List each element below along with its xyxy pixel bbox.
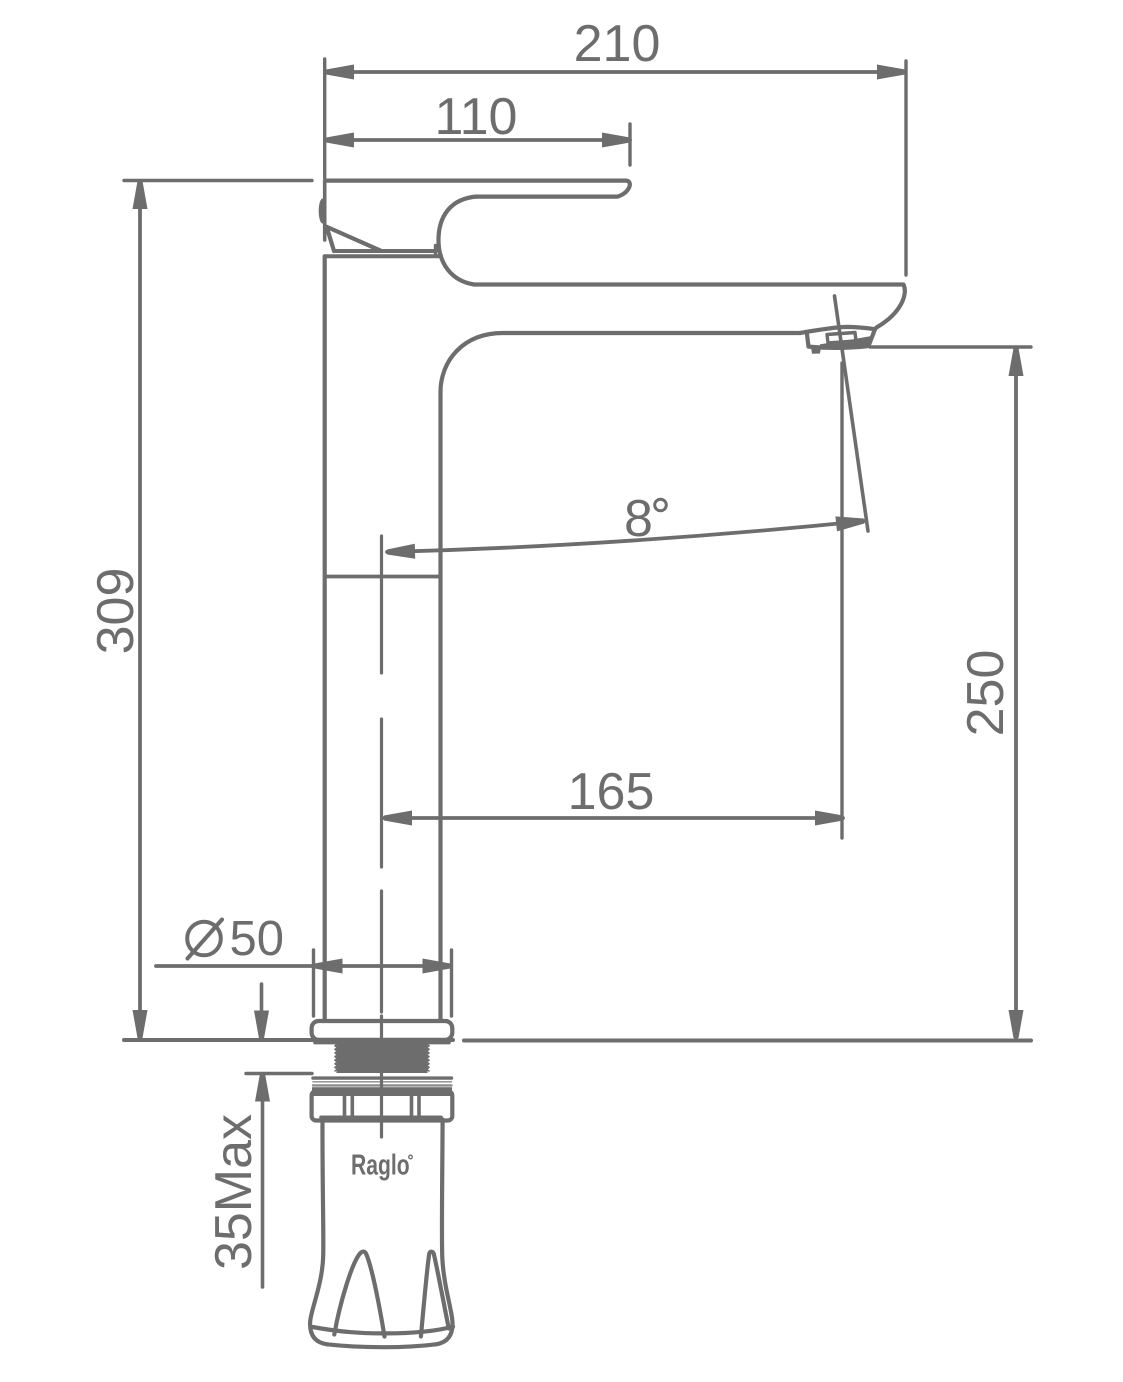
svg-text:210: 210 bbox=[574, 15, 661, 73]
svg-text:309: 309 bbox=[87, 568, 145, 655]
svg-text:8: 8 bbox=[624, 490, 653, 548]
svg-text:Raglo: Raglo bbox=[351, 1149, 410, 1181]
svg-text:50: 50 bbox=[230, 912, 285, 966]
svg-text:165: 165 bbox=[568, 763, 655, 821]
svg-text:110: 110 bbox=[435, 88, 518, 146]
svg-text:250: 250 bbox=[957, 650, 1015, 737]
svg-text:35Max: 35Max bbox=[205, 1114, 263, 1270]
